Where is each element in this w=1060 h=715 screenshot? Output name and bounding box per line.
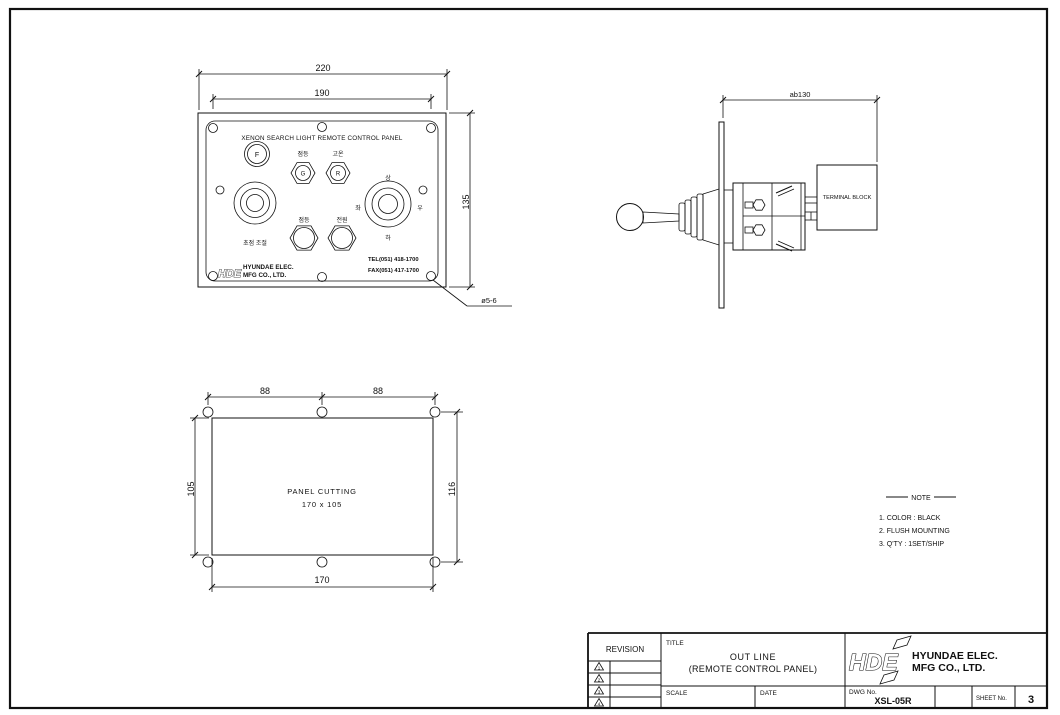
- note-item-1: 1. COLOR : BLACK: [879, 515, 941, 522]
- company-logo: HDE HYUNDAE ELEC. MFG CO., LTD.: [849, 636, 998, 684]
- dim-88-left: 88: [260, 386, 270, 396]
- screw-hole: [419, 186, 427, 194]
- panel-title: XENON SEARCH LIGHT REMOTE CONTROL PANEL: [241, 135, 403, 142]
- panel-logo-line2: MFG CO., LTD.: [243, 272, 286, 279]
- lamp-g: 점등 G: [291, 151, 315, 183]
- switch-lighting-label: 점등: [298, 217, 310, 224]
- switch-lighting: 점등: [290, 217, 318, 250]
- joystick-right-label: 우: [417, 205, 423, 212]
- mount-hole: [203, 407, 213, 417]
- dim-105: 105: [186, 481, 196, 496]
- dim-88-right: 88: [373, 386, 383, 396]
- revision-mark: 3: [595, 687, 604, 695]
- note-item-2: 2. FLUSH MOUNTING: [879, 528, 950, 535]
- drawing-canvas: 220 190 135 XENON SEARCH LIGHT REMOTE CO…: [0, 0, 1060, 715]
- lamp-r-label: 고온: [332, 151, 344, 158]
- focus-knob-label: 초점 조절: [243, 239, 267, 247]
- lamp-g-label: 점등: [297, 151, 309, 158]
- lamp-g-letter: G: [301, 172, 306, 178]
- dim-depth: ab130: [790, 90, 811, 99]
- terminal-block: TERMINAL BLOCK: [817, 165, 877, 230]
- screw-hole: [427, 124, 436, 133]
- cutting-label-2: 170 x 105: [302, 500, 342, 509]
- mount-hole: [430, 557, 440, 567]
- sheet-border: [10, 9, 1047, 708]
- screw-hole: [318, 273, 327, 282]
- revision-mark: 4: [595, 699, 604, 707]
- panel-logo-abbr: HDE: [218, 268, 242, 280]
- front-view: 220 190 135 XENON SEARCH LIGHT REMOTE CO…: [196, 63, 512, 306]
- switch-body: [724, 183, 817, 251]
- dim-220: 220: [315, 63, 330, 73]
- company-logo-abbr: HDE: [849, 649, 898, 675]
- dim-116: 116: [447, 482, 457, 496]
- note-item-3: 3. Q'TY : 1SET/SHIP: [879, 541, 944, 548]
- scale-label: SCALE: [666, 690, 688, 697]
- revision-mark: 1: [595, 663, 604, 671]
- note-title: NOTE: [911, 495, 931, 502]
- screw-hole: [209, 124, 218, 133]
- joystick-left-label: 좌: [355, 204, 361, 212]
- drawing-sheet: 220 190 135 XENON SEARCH LIGHT REMOTE CO…: [0, 0, 1060, 715]
- terminal-block-label: TERMINAL BLOCK: [823, 195, 872, 201]
- panel-tel: TEL(051) 418-1700: [368, 257, 419, 263]
- company-logo-line2: MFG CO., LTD.: [912, 662, 985, 674]
- logo-flag-top: [893, 636, 911, 649]
- dim-190: 190: [314, 88, 329, 98]
- lamp-r-letter: R: [336, 172, 341, 178]
- mount-hole: [317, 557, 327, 567]
- joystick-handle: [617, 189, 720, 245]
- joystick-boot: [703, 189, 719, 245]
- cutting-label-1: PANEL CUTTING: [287, 487, 357, 496]
- screw-hole: [427, 272, 436, 281]
- fuse-button: F: [245, 142, 270, 167]
- joystick-pad: 상 좌 우 하: [355, 174, 423, 242]
- dwg-number: XSL-05R: [874, 696, 912, 706]
- mount-hole: [317, 407, 327, 417]
- drawing-title-2: (REMOTE CONTROL PANEL): [689, 664, 818, 674]
- dwg-label: DWG No.: [849, 689, 877, 696]
- joystick-up-label: 상: [385, 174, 391, 182]
- revision-label: REVISION: [606, 645, 644, 654]
- cutting-view: 88 88 105 116 170 PANEL CUTTING 170 x 10…: [186, 386, 463, 592]
- joystick-down-label: 하: [385, 234, 391, 242]
- switch-power-label: 전원: [336, 216, 347, 224]
- sheet-label: SHEET No.: [976, 696, 1007, 702]
- dim-170: 170: [314, 575, 329, 585]
- title-label: TITLE: [666, 640, 684, 647]
- fuse-letter: F: [255, 152, 259, 159]
- company-logo-line1: HYUNDAE ELEC.: [912, 650, 998, 662]
- side-view: ab130: [617, 90, 881, 308]
- title-block: REVISION 1 2 3 4 TITLE OUT LINE (REMOTE …: [588, 633, 1046, 707]
- hole-callout: ø5-6: [481, 296, 496, 305]
- sheet-number: 3: [1028, 694, 1034, 706]
- revision-mark: 2: [595, 675, 604, 683]
- panel-fax: FAX(051) 417-1700: [368, 268, 419, 274]
- lamp-r: 고온 R: [326, 151, 350, 183]
- dim-135: 135: [461, 194, 471, 209]
- focus-knob: 초점 조절: [234, 182, 276, 247]
- mounting-plate: [719, 122, 724, 308]
- note-block: NOTE 1. COLOR : BLACK 2. FLUSH MOUNTING …: [879, 495, 956, 548]
- panel-logo: HDE HYUNDAE ELEC. MFG CO., LTD.: [218, 264, 294, 280]
- drawing-title-1: OUT LINE: [730, 652, 776, 662]
- mount-hole: [203, 557, 213, 567]
- screw-hole: [318, 123, 327, 132]
- screw-hole: [209, 272, 218, 281]
- date-label: DATE: [760, 690, 778, 697]
- switch-power: 전원: [328, 216, 356, 250]
- screw-hole: [216, 186, 224, 194]
- panel-logo-line1: HYUNDAE ELEC.: [243, 264, 294, 271]
- mount-hole: [430, 407, 440, 417]
- joystick-ball: [617, 204, 644, 231]
